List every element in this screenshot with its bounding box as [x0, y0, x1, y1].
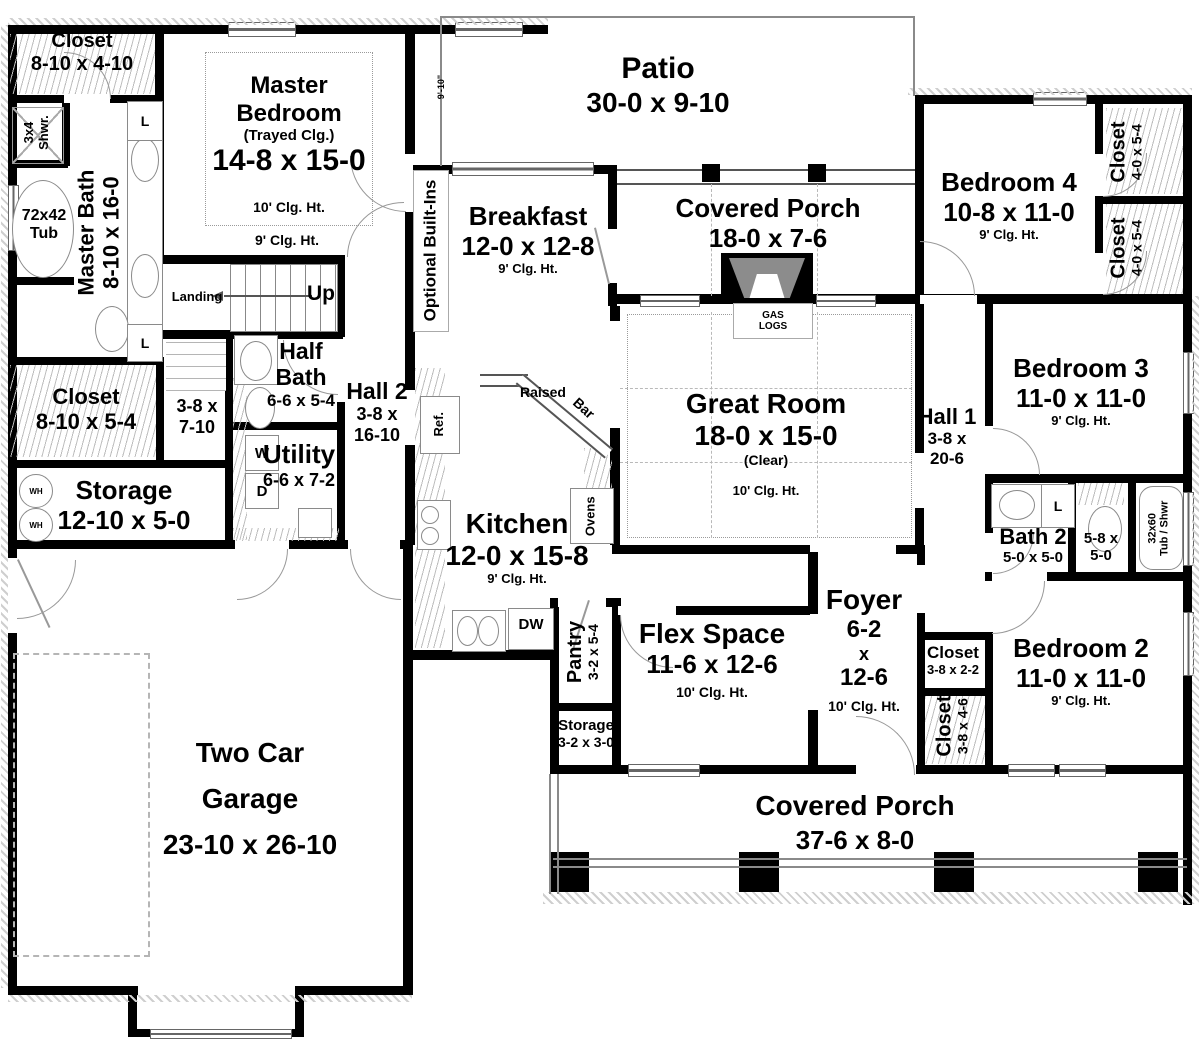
door-opening: [618, 606, 676, 615]
room-label-covered-porch-rear: Covered Porch 18-0 x 7-6: [676, 194, 861, 254]
room-label-hall-lower: 3-8 x 7-10: [176, 396, 217, 437]
room-label-water-closet: 5-8 x 5-0: [1084, 530, 1118, 565]
burner: [421, 527, 439, 545]
window: [640, 295, 700, 307]
water-heater-1: WH: [19, 474, 53, 508]
porch-post: [808, 164, 826, 182]
door-arc: [856, 716, 915, 775]
wall-segment: [405, 445, 415, 545]
dishwasher-label: DW: [519, 616, 544, 633]
wall-segment: [808, 552, 818, 614]
door-arc: [920, 241, 975, 296]
room-label-bedroom2: Bedroom 2 11-0 x 11-0 9' Clg. Ht.: [1013, 634, 1149, 709]
sink: [478, 616, 499, 646]
room-label-hall2: Hall 2 3-8 x 16-10: [346, 378, 407, 446]
door-opening: [348, 540, 400, 549]
room-label-closet-master-lower: Closet 8-10 x 5-4: [36, 384, 136, 435]
room-label-garage: Two Car Garage 23-10 x 26-10: [163, 737, 337, 862]
exterior-hatch: [908, 88, 1192, 95]
door-leaf: [594, 228, 610, 285]
room-label-storage-front: Storage 3-2 x 3-0: [558, 717, 614, 750]
door-arc: [350, 549, 401, 600]
wall-segment: [985, 296, 993, 426]
room-label-great-room: Great Room 18-0 x 15-0 (Clear) 10' Clg. …: [686, 388, 846, 499]
door-opening: [8, 558, 17, 633]
wall-segment: [985, 474, 1192, 483]
window: [628, 764, 700, 777]
room-label-pantry: Pantry 3-2 x 5-4: [554, 604, 612, 700]
patio-outline: [913, 16, 915, 96]
wall-segment: [157, 255, 343, 264]
wall-segment: [896, 545, 917, 554]
garage-door: [150, 1029, 292, 1039]
porch-edge-line: [553, 858, 1187, 860]
wall-segment: [550, 703, 612, 711]
wall-segment: [608, 165, 617, 229]
raised-bar-label-1: Raised: [520, 384, 566, 400]
optional-builtins-label: Optional Built-Ins: [406, 168, 454, 334]
stairs-arrow: [224, 295, 312, 297]
sink: [999, 490, 1035, 520]
water-heater-2: WH: [19, 508, 53, 542]
door-opening: [235, 540, 289, 549]
wall-segment: [156, 357, 164, 460]
raised-bar-label-2: Bar: [572, 400, 595, 416]
porch-edge-line: [553, 866, 1187, 868]
room-label-patio: Patio 30-0 x 9-10: [586, 52, 729, 119]
patio-outline: [440, 16, 915, 18]
wall-segment: [233, 422, 337, 430]
room-label-hall1: Hall 1 3-8 x 20-6: [918, 404, 977, 468]
room-label-master-bedroom-ceiling2: 9' Clg. Ht.: [255, 232, 319, 248]
floor-plan: Closet 8-10 x 4-10 Master Bedroom (Traye…: [0, 0, 1200, 1043]
burner: [421, 506, 439, 524]
room-label-flex-space: Flex Space 11-6 x 12-6 10' Clg. Ht.: [639, 618, 785, 700]
exterior-hatch: [8, 995, 412, 1002]
room-label-closet-foyer: Closet 3-8 x 2-2: [927, 643, 979, 677]
porch-edge-line: [549, 774, 551, 894]
wall-segment: [610, 306, 620, 321]
wall-segment: [8, 986, 138, 995]
refrigerator-label: Ref.: [418, 398, 460, 450]
linen-closet-master-bottom: L: [127, 324, 163, 362]
wall-segment: [917, 545, 925, 565]
wall-segment: [225, 330, 233, 545]
sink: [457, 616, 478, 646]
sink: [131, 254, 159, 298]
room-label-covered-porch-front: Covered Porch 37-6 x 8-0: [755, 790, 954, 856]
room-label-tub-master: 72x42 Tub: [22, 207, 67, 244]
exterior-hatch: [543, 892, 1192, 904]
porch-edge-line: [557, 774, 559, 894]
room-label-foyer: Foyer 6-2 x 12-6 10' Clg. Ht.: [826, 584, 902, 714]
stairs-up-label: Up: [307, 282, 335, 306]
door-arc: [237, 549, 288, 600]
wall-segment: [985, 632, 993, 774]
door-opening: [920, 295, 977, 304]
room-label-shower-master: 3x4 Shwr.: [6, 102, 66, 164]
wall-segment: [612, 545, 810, 554]
room-label-bedroom3: Bedroom 3 11-0 x 11-0 9' Clg. Ht.: [1013, 354, 1149, 429]
utility-sink: [298, 508, 332, 538]
linen-closet-master-top: L: [127, 101, 163, 141]
door-arc: [17, 560, 76, 619]
room-label-half-bath: Half Bath 6-6 x 5-4: [251, 338, 351, 410]
exterior-hatch: [1, 25, 8, 988]
wall-segment: [337, 402, 345, 545]
stairs-landing-label: Landing: [172, 290, 223, 305]
room-label-tub-shower2: 32x60 Tub / Shwr: [1132, 488, 1186, 568]
room-label-bedroom4: Bedroom 4 10-8 x 11-0 9' Clg. Ht.: [941, 168, 1077, 243]
wall-segment: [925, 632, 985, 640]
stairs-lower-flight: [166, 339, 226, 391]
exterior-hatch: [8, 18, 548, 25]
wall-segment: [8, 460, 230, 468]
window: [1008, 764, 1055, 777]
wall-segment: [403, 545, 413, 995]
wall-segment: [1095, 196, 1183, 204]
window: [452, 162, 594, 176]
hatch-area: [1078, 483, 1124, 505]
window: [816, 295, 876, 307]
room-label-bath2: Bath 2 5-0 x 5-0: [999, 524, 1066, 567]
ovens-label: Ovens: [568, 490, 614, 542]
wall-segment: [808, 710, 818, 774]
room-label-closet-bed4-lower: Closet 4-0 x 5-4: [1098, 204, 1156, 292]
garage-attic-outline: [13, 653, 150, 957]
room-label-closet-master-top: Closet 8-10 x 4-10: [31, 30, 133, 76]
room-label-master-bath: Master Bath 8-10 x 16-0: [64, 138, 134, 328]
wall-segment: [295, 986, 412, 995]
wall-segment: [337, 255, 345, 337]
door-arc: [993, 428, 1040, 475]
patio-depth-dimension: 9'-10": [428, 52, 454, 122]
room-label-storage-rear: Storage 12-10 x 5-0: [58, 476, 191, 536]
window: [1059, 764, 1106, 777]
room-label-utility: Utility 6-6 x 7-2: [263, 440, 335, 491]
room-label-closet-bed2: Closet 3-8 x 4-6: [922, 690, 984, 762]
linen-closet-bath2: L: [1041, 484, 1075, 528]
sink: [131, 138, 159, 182]
porch-post: [702, 164, 720, 182]
wall-segment: [155, 25, 164, 103]
wall-segment: [405, 25, 415, 154]
room-label-breakfast: Breakfast 12-0 x 12-8 9' Clg. Ht.: [462, 202, 595, 277]
wall-segment: [915, 508, 924, 548]
room-label-master-bedroom: Master Bedroom (Trayed Clg.) 14-8 x 15-0…: [199, 72, 379, 215]
gas-logs-label: GAS LOGS: [733, 303, 813, 339]
porch-beam: [617, 169, 915, 185]
exterior-hatch: [1192, 296, 1199, 904]
door-arc: [992, 581, 1045, 634]
room-label-closet-bed4-upper: Closet 4-0 x 5-4: [1098, 108, 1156, 196]
